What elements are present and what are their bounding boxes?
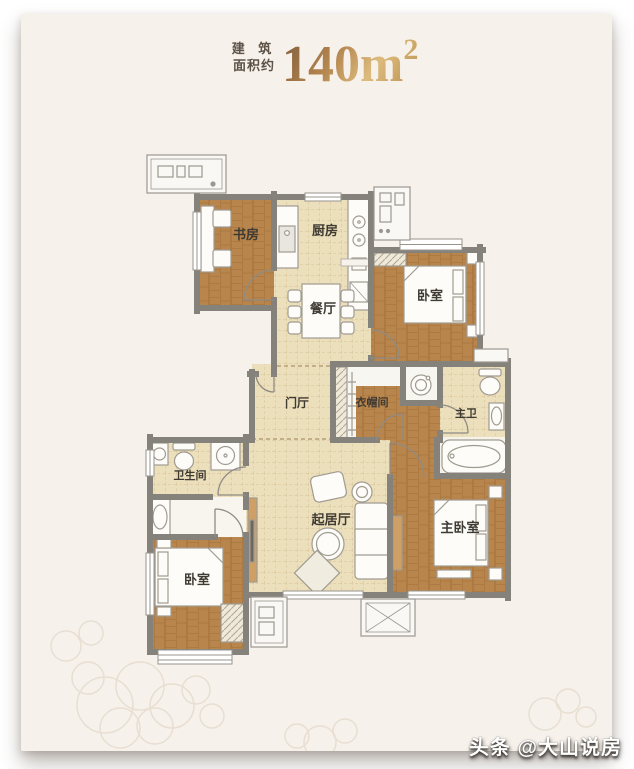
bay-window-bedroom-north [400,239,462,250]
window-bedroom-north-right [476,262,484,335]
room-label-master-bedroom: 主卧室 [440,520,479,535]
room-label-bathroom: 卫生间 [174,468,207,482]
room-label-bedroom-south: 卧室 [184,572,210,587]
window-kitchen-top [305,193,341,201]
ac-platform-bottom-right [361,599,415,636]
ac-platform-bottom-left [251,597,287,647]
title-line1: 建 筑 [232,41,277,56]
floor-plan-svg: 建 筑 面积约 140m2 [0,0,634,769]
window-master-south [408,591,465,599]
room-label-kitchen: 厨房 [312,223,338,238]
room-label-bedroom-north: 卧室 [417,288,443,303]
watermark-text: 头条 @大山说房 [469,731,622,760]
vanity-sink-icon [411,375,431,395]
shower-icon [211,441,240,470]
room-label-foyer: 门厅 [285,395,309,410]
equipment-platform-master-bath [474,349,508,362]
window-bedroom-south-left [146,553,154,615]
bay-window-bedroom-south [158,650,232,664]
title-line2: 面积约 [233,58,275,73]
kitchen-pass-opening [341,259,371,266]
room-label-dining: 餐厅 [309,301,336,316]
cloakroom-wood [356,386,403,440]
toilet-icon-bath [173,443,195,470]
window-study-left [193,212,201,270]
room-label-master-bath: 主卫 [455,406,477,420]
page: 建 筑 面积约 140m2 [0,0,634,769]
window-living-south [283,591,363,599]
toilet-icon-master [479,369,501,395]
ac-platform-top-left [147,155,226,193]
title-area: 140m2 [282,33,418,93]
window-bathroom-left [146,450,154,476]
equipment-platform-kitchen [374,187,410,240]
room-label-study: 书房 [233,227,259,242]
tv-cabinet-icon [248,498,257,582]
corridor-wood [403,403,440,440]
sink-icon-master [489,403,504,430]
room-label-living: 起居厅 [310,512,350,527]
room-label-cloakroom: 衣帽间 [356,395,389,409]
bathtub-icon [442,440,506,473]
title-block: 建 筑 面积约 140m2 [232,33,419,93]
